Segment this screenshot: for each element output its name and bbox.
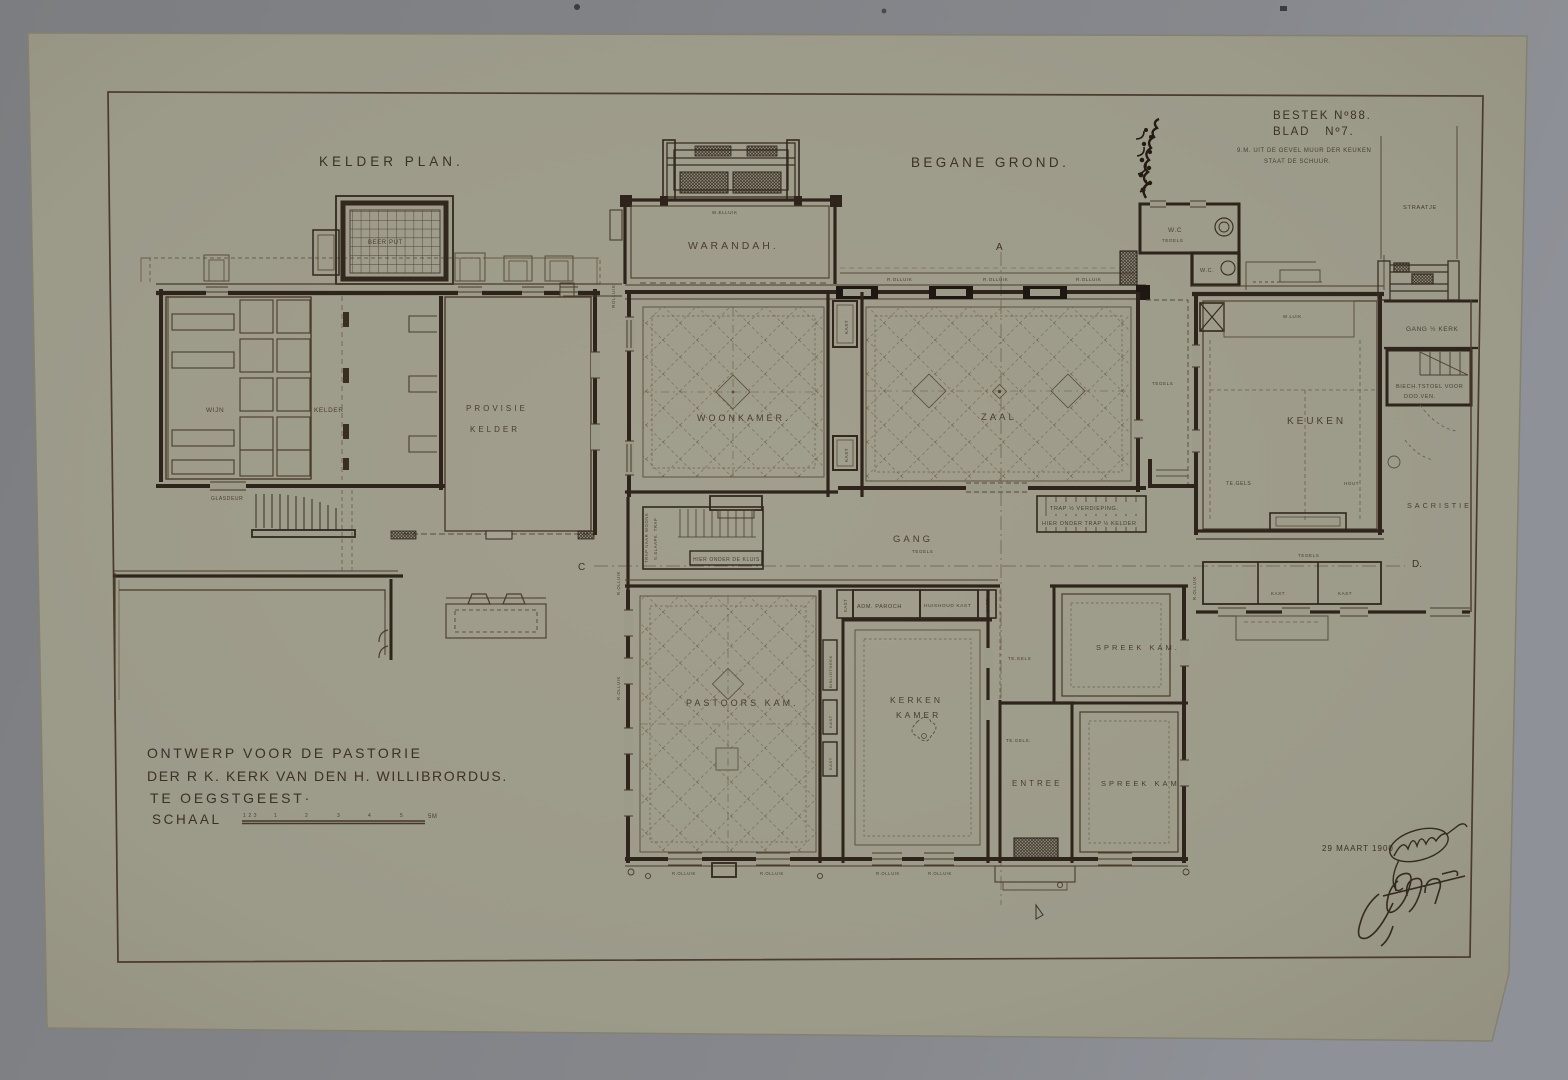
svg-text:TE OEGSTGEEST·: TE OEGSTGEEST·	[150, 790, 312, 806]
svg-text:N.SLAAPK. TRAP: N.SLAAPK. TRAP	[653, 518, 658, 560]
svg-text:9.M. UIT DE GEVEL MUUR DER KEU: 9.M. UIT DE GEVEL MUUR DER KEUKEN	[1237, 148, 1372, 154]
svg-text:KAST: KAST	[828, 715, 833, 728]
svg-text:TRAP ½ VERDIEPING.: TRAP ½ VERDIEPING.	[1050, 505, 1118, 512]
svg-text:TEGELS: TEGELS	[1162, 238, 1183, 243]
svg-text:BIBLIOTHEEK: BIBLIOTHEEK	[828, 655, 833, 688]
svg-text:5: 5	[400, 813, 403, 819]
svg-text:DER R K. KERK VAN DEN H. WI: DER R K. KERK VAN DEN H. WILLIBRORDUS.	[147, 768, 508, 784]
svg-text:KAST: KAST	[828, 757, 833, 770]
svg-text:R.OLLUIK: R.OLLUIK	[1076, 277, 1101, 282]
svg-text:TRAP NAAR WOONK: TRAP NAAR WOONK	[644, 513, 649, 563]
svg-text:TEGELS: TEGELS	[1152, 381, 1173, 386]
svg-text:HIER ONDER DE KLUIS: HIER ONDER DE KLUIS	[693, 557, 760, 563]
svg-text:WARANDAH.: WARANDAH.	[688, 240, 779, 252]
svg-text:STRAATJE: STRAATJE	[1403, 205, 1437, 211]
svg-text:W.ELLUIK: W.ELLUIK	[712, 210, 738, 215]
svg-text:R.OLLUIK: R.OLLUIK	[887, 277, 912, 282]
svg-text:ENTREE: ENTREE	[1012, 779, 1062, 788]
svg-text:SPREEK KAM.: SPREEK KAM.	[1096, 643, 1180, 652]
svg-text:2: 2	[305, 813, 308, 819]
svg-text:BLAD Nº7.: BLAD Nº7.	[1273, 126, 1355, 138]
svg-text:DOO.VEN.: DOO.VEN.	[1404, 394, 1436, 400]
svg-text:A: A	[996, 242, 1003, 253]
svg-text:1 2 3: 1 2 3	[243, 813, 257, 819]
svg-text:D.: D.	[1412, 559, 1422, 570]
svg-text:TE.GELS: TE.GELS	[1008, 656, 1031, 661]
svg-text:KAST: KAST	[844, 320, 849, 334]
svg-text:WOONKAMER.: WOONKAMER.	[697, 413, 791, 423]
svg-text:HIER ONDER TRAP ½ KELDER: HIER ONDER TRAP ½ KELDER	[1042, 520, 1137, 527]
svg-text:R.OLLUIK: R.OLLUIK	[928, 871, 952, 876]
svg-text:KAST: KAST	[844, 448, 849, 462]
svg-text:SACRISTIE: SACRISTIE	[1407, 501, 1472, 510]
svg-text:29 MAART 1900: 29 MAART 1900	[1322, 844, 1394, 853]
svg-text:HUISHOUD KAST: HUISHOUD KAST	[924, 603, 971, 609]
svg-text:R.OLLUIK: R.OLLUIK	[983, 277, 1008, 282]
svg-text:BEER PUT: BEER PUT	[368, 240, 403, 246]
svg-text:KELDER: KELDER	[470, 425, 520, 434]
svg-text:R.OLLUIK: R.OLLUIK	[616, 676, 621, 700]
svg-text:PASTOORS KAM.: PASTOORS KAM.	[686, 698, 799, 708]
svg-text:KERKEN: KERKEN	[890, 695, 943, 705]
svg-text:TE.GELS.: TE.GELS.	[1006, 738, 1031, 743]
svg-text:KAMER: KAMER	[896, 710, 941, 720]
svg-text:TE.GELS: TE.GELS	[1226, 481, 1251, 487]
svg-text:BEGANE GROND.: BEGANE GROND.	[911, 155, 1069, 170]
svg-text:R.OLLUIK: R.OLLUIK	[760, 871, 784, 876]
svg-text:KELDER: KELDER	[314, 407, 344, 414]
svg-text:KAST: KAST	[843, 599, 848, 612]
svg-text:BESTEK Nº88.: BESTEK Nº88.	[1273, 110, 1372, 122]
svg-text:W.C: W.C	[1168, 227, 1182, 234]
svg-text:SCHAAL: SCHAAL	[152, 812, 222, 827]
svg-text:ZAAL: ZAAL	[981, 412, 1017, 423]
svg-text:R.OLLUIK: R.OLLUIK	[616, 571, 621, 595]
svg-text:ADM. PAROCH: ADM. PAROCH	[857, 604, 902, 610]
svg-text:3: 3	[337, 813, 340, 819]
svg-text:5M: 5M	[428, 814, 438, 820]
svg-text:HOUT: HOUT	[1344, 481, 1359, 486]
svg-text:STAAT DE SCHUUR.: STAAT DE SCHUUR.	[1264, 159, 1331, 165]
svg-text:TEGELS: TEGELS	[1298, 553, 1319, 558]
svg-text:KAST: KAST	[1271, 591, 1285, 596]
svg-text:KEUKEN: KEUKEN	[1287, 416, 1346, 427]
svg-text:W.C.: W.C.	[1200, 268, 1214, 274]
svg-text:GANG: GANG	[893, 534, 933, 545]
svg-text:4: 4	[368, 813, 371, 819]
svg-text:WIJN: WIJN	[206, 407, 224, 414]
svg-text:R.OLLUIK: R.OLLUIK	[1192, 576, 1197, 600]
svg-text:C: C	[578, 562, 585, 573]
svg-text:SPREEK KAM.: SPREEK KAM.	[1101, 779, 1185, 788]
svg-text:R.OLLUIK: R.OLLUIK	[672, 871, 696, 876]
svg-text:1: 1	[274, 813, 277, 819]
svg-text:ROLLUIK: ROLLUIK	[611, 285, 616, 308]
svg-text:KAST: KAST	[1338, 591, 1352, 596]
svg-text:R.OLLUIK: R.OLLUIK	[876, 871, 900, 876]
svg-text:BIECH.TSTOEL VOOR: BIECH.TSTOEL VOOR	[1396, 384, 1463, 390]
svg-text:W.LUIK: W.LUIK	[1283, 314, 1302, 319]
svg-text:KELDER PLAN.: KELDER PLAN.	[319, 154, 464, 169]
svg-text:GANG ½ KERK: GANG ½ KERK	[1406, 325, 1459, 333]
svg-text:ONTWERP VOOR DE PASTORIE: ONTWERP VOOR DE PASTORIE	[147, 745, 423, 761]
svg-text:GLASDEUR: GLASDEUR	[211, 496, 243, 502]
svg-text:PROVISIE: PROVISIE	[466, 404, 528, 413]
svg-text:TEGELS: TEGELS	[912, 549, 933, 554]
